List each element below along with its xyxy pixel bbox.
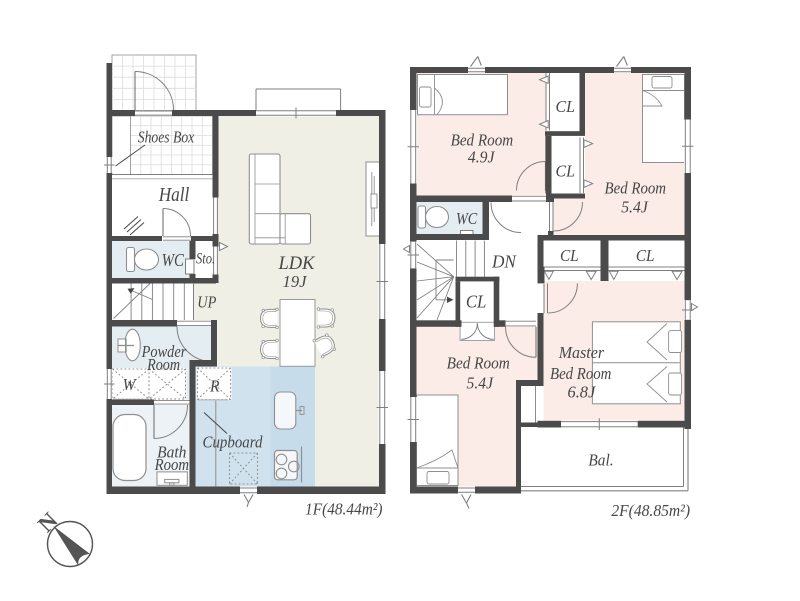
svg-text:CL: CL: [636, 246, 655, 265]
svg-text:CL: CL: [556, 97, 576, 116]
svg-text:WC: WC: [162, 250, 185, 270]
svg-text:R: R: [209, 377, 220, 396]
svg-text:2F(48.85m²): 2F(48.85m²): [611, 501, 690, 520]
svg-text:6.8J: 6.8J: [568, 383, 597, 402]
svg-text:Room: Room: [146, 355, 180, 374]
svg-text:CL: CL: [560, 246, 579, 265]
svg-text:19J: 19J: [283, 272, 308, 291]
svg-text:Shoes Box: Shoes Box: [138, 128, 195, 147]
svg-text:Master: Master: [558, 343, 605, 362]
svg-text:LDK: LDK: [278, 253, 316, 274]
svg-text:5.4J: 5.4J: [621, 198, 649, 217]
svg-text:Sto.: Sto.: [196, 251, 215, 268]
svg-text:1F(48.44m²): 1F(48.44m²): [305, 500, 383, 519]
svg-text:Room: Room: [154, 455, 189, 474]
svg-text:Bed Room: Bed Room: [447, 353, 510, 372]
svg-text:Bed Room: Bed Room: [550, 364, 611, 383]
svg-text:Cupboard: Cupboard: [203, 433, 264, 452]
svg-text:DN: DN: [491, 252, 517, 272]
svg-text:CL: CL: [466, 291, 487, 311]
svg-text:Hall: Hall: [158, 184, 190, 206]
svg-text:Bal.: Bal.: [588, 450, 613, 469]
svg-text:W: W: [123, 375, 137, 394]
svg-text:CL: CL: [556, 162, 576, 181]
svg-text:UP: UP: [197, 293, 216, 312]
svg-text:5.4J: 5.4J: [467, 373, 495, 392]
svg-text:4.9J: 4.9J: [468, 147, 496, 166]
svg-text:WC: WC: [456, 209, 478, 228]
svg-text:Bed Room: Bed Room: [605, 179, 667, 198]
